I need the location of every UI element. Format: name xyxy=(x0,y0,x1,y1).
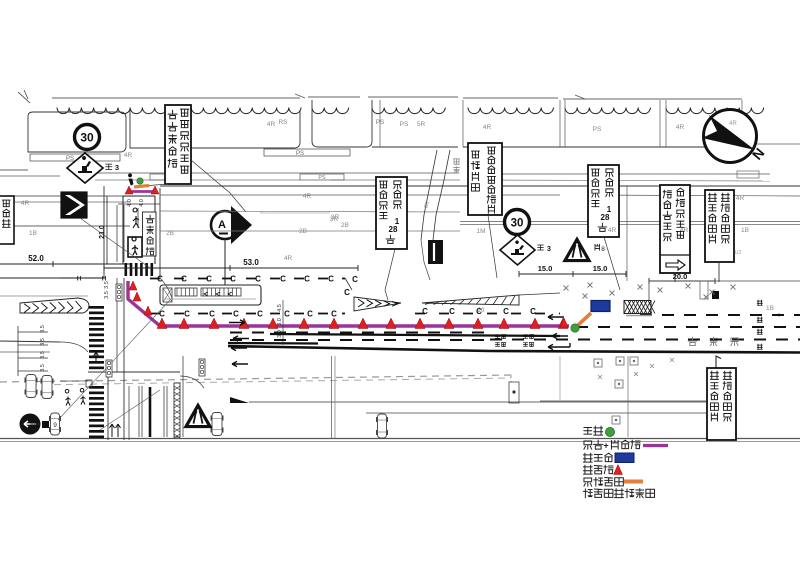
svg-text:C: C xyxy=(206,275,212,284)
svg-text:15.0: 15.0 xyxy=(538,264,553,273)
svg-text:2B: 2B xyxy=(166,230,174,237)
svg-text:C: C xyxy=(530,307,536,316)
svg-text:4.5: 4.5 xyxy=(277,304,283,312)
svg-text:PS: PS xyxy=(593,126,602,133)
svg-text:4R: 4R xyxy=(729,121,737,127)
svg-text:53.0: 53.0 xyxy=(243,258,259,267)
svg-text:3.5: 3.5 xyxy=(104,281,110,289)
svg-text:3.5: 3.5 xyxy=(40,325,46,333)
svg-text:4R: 4R xyxy=(267,121,276,128)
svg-text:1M: 1M xyxy=(476,228,485,235)
svg-text:2B: 2B xyxy=(299,228,307,235)
svg-text:R5: R5 xyxy=(424,201,431,209)
svg-text:15.0: 15.0 xyxy=(593,264,608,273)
svg-text:21.0: 21.0 xyxy=(99,225,106,239)
svg-text:3.5: 3.5 xyxy=(104,291,110,299)
svg-text:3.5: 3.5 xyxy=(40,351,46,359)
svg-text:4R: 4R xyxy=(676,124,685,131)
svg-text:3.0: 3.0 xyxy=(277,318,283,326)
svg-text:3.5: 3.5 xyxy=(40,338,46,346)
svg-text:C: C xyxy=(449,307,455,316)
svg-text:30: 30 xyxy=(80,131,94,145)
svg-text:3: 3 xyxy=(115,163,119,172)
svg-text:1B: 1B xyxy=(741,227,749,234)
svg-text:5R: 5R xyxy=(417,121,426,128)
svg-text:4.0: 4.0 xyxy=(139,199,145,207)
svg-text:1B: 1B xyxy=(29,230,37,237)
svg-text:PS: PS xyxy=(296,151,304,157)
svg-text:C: C xyxy=(230,275,236,284)
svg-text:C: C xyxy=(304,275,310,284)
svg-text:4R: 4R xyxy=(680,227,689,234)
svg-text:52.0: 52.0 xyxy=(28,254,44,263)
svg-text:C: C xyxy=(255,275,261,284)
svg-text:4R: 4R xyxy=(124,152,133,159)
svg-text:C: C xyxy=(284,310,290,319)
svg-text:9: 9 xyxy=(53,422,57,429)
svg-text:C: C xyxy=(307,310,313,319)
svg-text:C: C xyxy=(181,275,187,284)
svg-text:8: 8 xyxy=(601,246,605,253)
svg-text:2B: 2B xyxy=(341,222,349,229)
svg-text:C: C xyxy=(331,310,337,319)
svg-text:PS: PS xyxy=(400,121,409,128)
svg-text:H: H xyxy=(77,277,81,283)
svg-text:4R: 4R xyxy=(303,193,312,200)
svg-text:3: 3 xyxy=(547,246,551,253)
svg-text:RS: RS xyxy=(278,119,288,126)
svg-text:PS: PS xyxy=(318,175,326,181)
svg-text:C: C xyxy=(157,275,163,284)
svg-text:PS: PS xyxy=(376,119,385,126)
svg-text:C: C xyxy=(184,310,190,319)
svg-text:4R: 4R xyxy=(608,227,617,234)
svg-text:4R: 4R xyxy=(483,124,492,131)
svg-text:C: C xyxy=(280,275,286,284)
svg-text:A: A xyxy=(218,219,226,231)
svg-text:30: 30 xyxy=(511,218,524,230)
svg-text:+: + xyxy=(603,441,608,451)
svg-text:C: C xyxy=(344,288,350,297)
svg-text:C: C xyxy=(328,275,334,284)
svg-text:1B: 1B xyxy=(766,305,774,312)
svg-text:4.0: 4.0 xyxy=(127,199,133,207)
svg-text:C: C xyxy=(422,307,428,316)
svg-text:C: C xyxy=(352,275,358,284)
svg-text:28: 28 xyxy=(601,213,610,222)
svg-text:4R: 4R xyxy=(21,200,30,207)
svg-text:4R: 4R xyxy=(284,255,293,262)
svg-text:20: 20 xyxy=(478,308,485,314)
svg-text:C: C xyxy=(257,310,263,319)
svg-text:U2: U2 xyxy=(734,250,741,256)
svg-text:C: C xyxy=(233,310,239,319)
svg-text:C: C xyxy=(503,307,509,316)
svg-text:3.5: 3.5 xyxy=(40,364,46,372)
svg-text:3.0: 3.0 xyxy=(277,330,283,338)
svg-text:3R: 3R xyxy=(331,214,340,221)
svg-text:C: C xyxy=(209,310,215,319)
svg-text:PS: PS xyxy=(66,156,74,162)
svg-text:28: 28 xyxy=(389,225,398,234)
svg-text:4R: 4R xyxy=(736,195,745,202)
